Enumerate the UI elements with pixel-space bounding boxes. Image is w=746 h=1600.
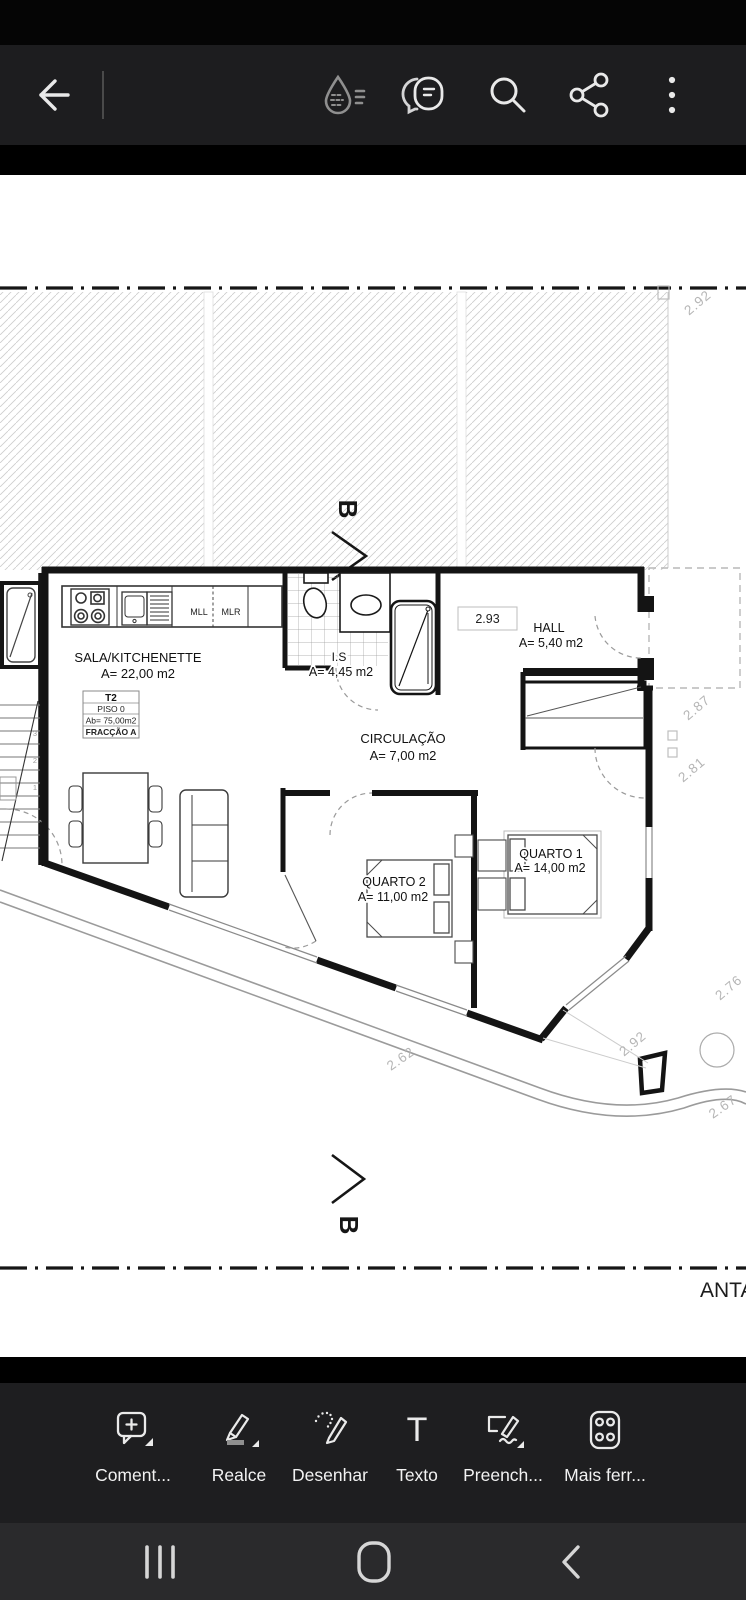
svg-text:B: B [334, 1216, 364, 1235]
svg-text:Ab= 75,00m2: Ab= 75,00m2 [86, 716, 137, 726]
common-stairwell [0, 573, 62, 865]
overflow-menu-icon[interactable] [644, 67, 700, 123]
search-icon[interactable] [479, 67, 535, 123]
label-sala: SALA/KITCHENETTE [74, 650, 201, 665]
fill-sign-tool[interactable]: Preench... [448, 1407, 558, 1486]
kitchen-counter [62, 586, 282, 627]
liquid-mode-icon[interactable] [316, 67, 372, 123]
bottom-toolbar: Coment... Realce Desenhar T Texto [0, 1383, 746, 1523]
fill-sign-tool-label: Preench... [448, 1465, 558, 1486]
label-is: I.S [332, 650, 347, 664]
label-quarto1-area: A= 14,00 m2 [514, 861, 585, 875]
unit-info-table: T2 PISO 0 Ab= 75,00m2 FRACÇÃO A [83, 691, 139, 738]
label-quarto2-area: A= 11,00 m2 [358, 890, 428, 904]
label-mll: MLL [190, 607, 208, 617]
letterbox-bottom [0, 1357, 746, 1383]
pdf-page[interactable]: B 2.92 1 2 3 [0, 175, 746, 1357]
letterbox-top [0, 145, 746, 175]
svg-text:2.81: 2.81 [675, 754, 708, 785]
svg-text:2.76: 2.76 [712, 972, 745, 1003]
back-button[interactable] [556, 1541, 586, 1583]
closet [523, 682, 645, 748]
stair-numbers: 1 2 3 [33, 729, 37, 792]
label-hall: HALL [533, 621, 564, 635]
back-arrow-icon[interactable] [24, 67, 80, 123]
label-mlr: MLR [221, 607, 241, 617]
svg-text:T: T [407, 1411, 428, 1449]
comment-tool-label: Coment... [78, 1465, 188, 1486]
partial-title-text: ANTA [700, 1279, 746, 1302]
sink-icon [122, 592, 147, 625]
recents-button[interactable] [138, 1541, 184, 1583]
svg-text:T2: T2 [105, 693, 117, 704]
toolbar-divider [102, 71, 104, 119]
home-button[interactable] [356, 1541, 392, 1583]
entrance-door-arc [595, 616, 641, 658]
svg-text:2.93: 2.93 [475, 612, 499, 626]
status-bar [0, 0, 746, 45]
street-circle [700, 1033, 734, 1067]
dim-top-right: 2.92 [681, 287, 714, 318]
svg-text:FRACÇÃO A: FRACÇÃO A [86, 727, 137, 737]
svg-text:2: 2 [33, 756, 37, 765]
svg-text:2.67: 2.67 [706, 1092, 739, 1122]
section-marker-b-bottom: B [332, 1155, 364, 1234]
top-toolbar [0, 45, 746, 145]
label-circulacao: CIRCULAÇÃO [360, 731, 445, 746]
view-comments-icon[interactable] [397, 67, 453, 123]
svg-text:2.92: 2.92 [616, 1028, 649, 1059]
corner-column [640, 1053, 665, 1093]
shower-icon [391, 601, 436, 694]
label-sala-area: A= 22,00 m2 [101, 666, 175, 681]
sofa [180, 790, 228, 897]
android-nav-bar [0, 1523, 746, 1600]
appliance-hatch [147, 592, 172, 625]
share-icon[interactable] [562, 67, 618, 123]
section-label: B [333, 500, 363, 519]
label-quarto1: QUARTO 1 [519, 847, 582, 861]
comment-tool[interactable]: Coment... [78, 1407, 188, 1486]
hatched-area [0, 292, 668, 570]
stove-icon [71, 589, 109, 625]
svg-text:3: 3 [33, 729, 37, 738]
more-tools[interactable]: Mais ferr... [550, 1407, 660, 1486]
svg-text:1: 1 [33, 783, 37, 792]
floor-plan-drawing: B 2.92 1 2 3 [0, 175, 746, 1357]
label-hall-area: A= 5,40 m2 [519, 636, 583, 650]
svg-text:2.87: 2.87 [680, 692, 713, 723]
dim-box-293: 2.93 [458, 607, 517, 630]
svg-text:PISO 0: PISO 0 [97, 704, 125, 714]
dining-table [69, 773, 162, 863]
label-quarto2: QUARTO 2 [362, 875, 425, 889]
washbasin-icon [340, 573, 390, 632]
label-is-area: A= 4,45 m2 [309, 665, 373, 679]
label-circulacao-area: A= 7,00 m2 [370, 748, 437, 763]
more-tools-label: Mais ferr... [550, 1465, 660, 1486]
